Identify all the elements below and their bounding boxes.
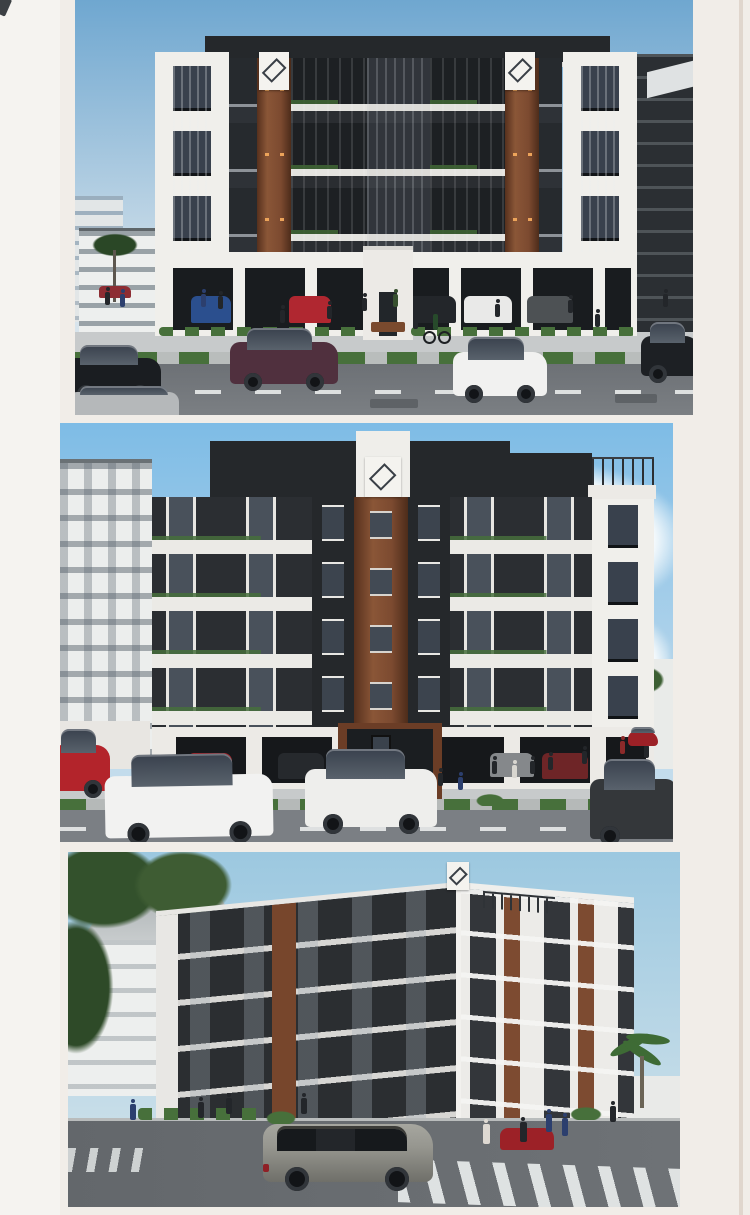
pedestrian-white-shirt	[483, 1124, 490, 1144]
pedestrian	[362, 298, 367, 311]
shrub	[568, 1106, 604, 1120]
dark-window-bay-right	[408, 497, 450, 733]
pedestrian	[492, 761, 497, 774]
wheel	[244, 373, 262, 391]
wheel	[465, 385, 483, 403]
cyclist	[423, 322, 451, 344]
front-facade	[458, 882, 634, 1143]
pedestrian	[548, 757, 553, 770]
pedestrian	[327, 306, 332, 319]
render-photo-front-close[interactable]	[60, 423, 673, 842]
timber-feature-tower	[354, 497, 408, 737]
wheel	[306, 373, 324, 391]
pedestrian	[512, 765, 517, 778]
road-patch	[615, 394, 657, 403]
white-stair-tower-right	[592, 499, 654, 727]
wheel	[517, 385, 535, 403]
garage-car	[289, 296, 331, 323]
background-white-tower-left	[60, 459, 152, 763]
pedestrian	[393, 294, 398, 307]
window-column	[608, 505, 638, 721]
green-verge	[75, 352, 693, 364]
pedestrian	[105, 292, 110, 305]
pedestrian	[568, 300, 573, 313]
pedestrian	[280, 310, 285, 323]
rider	[433, 314, 438, 330]
pedestrian	[218, 296, 223, 309]
pedestrian	[520, 1122, 527, 1142]
pedestrian	[663, 294, 668, 307]
wheel	[229, 821, 251, 842]
pedestrian	[458, 777, 463, 790]
pedestrian	[595, 314, 600, 327]
wheel	[127, 823, 149, 842]
wheel	[600, 826, 620, 842]
street-car-red-left	[60, 745, 110, 791]
pedestrian	[438, 773, 443, 786]
wheel	[285, 1167, 309, 1191]
corner-edge	[456, 876, 461, 1118]
street-car-silver-partial	[75, 392, 179, 415]
timber-bench	[371, 322, 405, 332]
pedestrian	[644, 745, 649, 758]
pedestrian	[130, 1104, 136, 1120]
garage-car	[191, 296, 231, 323]
pedestrian	[201, 294, 206, 307]
page-right-rule	[739, 0, 743, 1215]
wheel	[84, 780, 102, 798]
boundary-wall-right	[628, 1076, 680, 1122]
pedestrian	[495, 304, 500, 317]
wheel	[649, 365, 667, 383]
wheel	[399, 814, 419, 834]
background-parked-car	[99, 286, 131, 298]
pedestrian	[582, 751, 587, 764]
palm-trunk	[640, 1056, 644, 1108]
tower-window-column	[370, 497, 392, 737]
pedestrian	[562, 1118, 568, 1136]
street-car-white-suv-center	[305, 769, 437, 827]
screenshot-root: { "page": { "background_color": "#f1ede8…	[0, 0, 750, 1215]
pedestrian	[620, 741, 625, 754]
road-patch	[370, 399, 418, 408]
garage-car	[527, 296, 573, 323]
pedestrian	[413, 316, 418, 329]
street-car-grey-suv	[263, 1124, 433, 1182]
garage-car	[464, 296, 512, 323]
pedestrian	[198, 1102, 204, 1118]
diamond-crest-icon	[447, 862, 469, 890]
diamond-crest-icon	[365, 457, 401, 497]
render-photo-corner-view[interactable]	[68, 852, 680, 1207]
wheel	[385, 1167, 409, 1191]
apartment-wing-right	[450, 497, 592, 727]
page-left-margin	[0, 0, 60, 1215]
street-car-dark-suv-right	[590, 779, 673, 839]
diamond-crest-icon	[259, 52, 289, 90]
street-car-maroon-suv	[230, 342, 338, 384]
pedestrian	[226, 1098, 232, 1114]
window-column	[322, 505, 344, 725]
window-column	[418, 505, 440, 725]
street-car-red-small-right	[628, 731, 658, 746]
street-car-white-suv	[453, 352, 547, 396]
street-car-dark-right	[641, 336, 693, 376]
tree-foliage	[68, 912, 118, 1062]
pedestrian	[120, 294, 125, 307]
apartment-wing-left	[152, 497, 312, 727]
rooftop-parapet	[588, 485, 656, 499]
diamond-crest-icon	[505, 52, 535, 90]
zebra-crossing-left	[68, 1148, 148, 1172]
pedestrian	[610, 1106, 616, 1122]
pedestrian	[530, 761, 535, 774]
pedestrian	[301, 1098, 307, 1114]
wheel	[323, 814, 343, 834]
street-car-white-suv-left	[104, 774, 273, 839]
dark-window-bay-left	[312, 497, 354, 733]
roof-parapet-band-right	[510, 453, 592, 497]
pedestrian	[546, 1114, 552, 1132]
shrub	[264, 1110, 298, 1124]
median-plant	[474, 793, 506, 806]
render-photo-front-elevation[interactable]	[75, 0, 693, 415]
